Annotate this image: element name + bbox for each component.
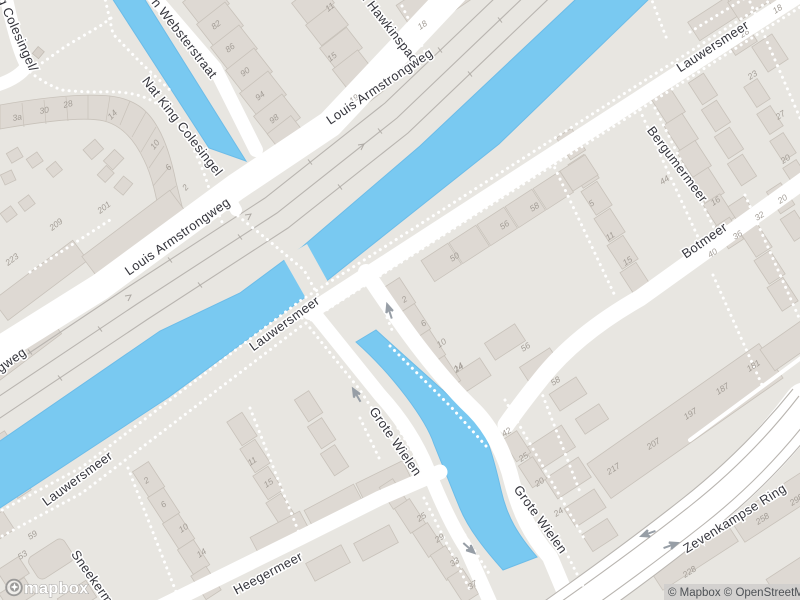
- svg-text:3a: 3a: [12, 111, 23, 123]
- svg-text:© Mapbox © OpenStreetMap: © Mapbox © OpenStreetMap: [668, 587, 800, 599]
- svg-text:mapbox: mapbox: [24, 580, 89, 598]
- svg-text:30: 30: [39, 104, 50, 116]
